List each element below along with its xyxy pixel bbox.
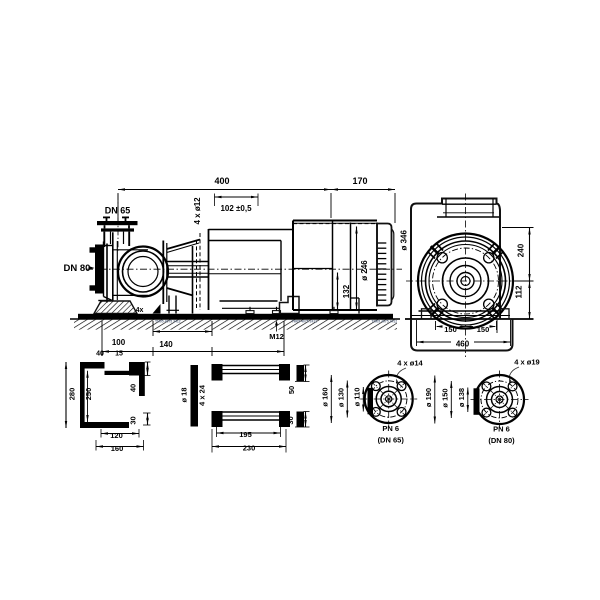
svg-text:160: 160 (111, 444, 124, 453)
svg-text:460: 460 (456, 340, 470, 349)
svg-text:PN 6: PN 6 (382, 424, 399, 433)
svg-text:132: 132 (342, 284, 351, 298)
svg-text:150: 150 (444, 325, 457, 334)
svg-text:102 ±0,5: 102 ±0,5 (220, 204, 252, 213)
svg-text:ø 150: ø 150 (441, 388, 450, 407)
svg-text:M12: M12 (269, 332, 284, 341)
svg-text:ø 138: ø 138 (457, 388, 466, 407)
svg-text:50: 50 (287, 386, 296, 394)
svg-text:140: 140 (159, 340, 173, 349)
svg-text:DN 80: DN 80 (64, 263, 91, 274)
svg-text:TM05 4075 2412: TM05 4075 2412 (292, 319, 318, 323)
svg-text:30: 30 (286, 416, 295, 424)
svg-text:ø 130: ø 130 (337, 388, 346, 407)
svg-text:ø 190: ø 190 (424, 388, 433, 407)
svg-text:ø 246: ø 246 (360, 260, 369, 281)
svg-text:195: 195 (239, 430, 252, 439)
svg-text:240: 240 (517, 243, 526, 257)
svg-text:4 x 24: 4 x 24 (198, 384, 207, 406)
svg-text:250: 250 (84, 388, 93, 401)
svg-text:40: 40 (96, 351, 104, 358)
svg-text:ø 18: ø 18 (180, 387, 189, 402)
svg-text:TM05 4075 2412: TM05 4075 2412 (155, 319, 181, 323)
svg-text:120: 120 (110, 431, 123, 440)
svg-text:4x: 4x (136, 307, 144, 314)
svg-text:ø 110: ø 110 (353, 388, 362, 407)
svg-text:(DN 80): (DN 80) (488, 436, 515, 445)
svg-text:4 x ø12: 4 x ø12 (193, 197, 202, 225)
svg-text:400: 400 (214, 176, 229, 186)
svg-text:4 x ø14: 4 x ø14 (397, 359, 423, 368)
svg-text:(DN 65): (DN 65) (378, 436, 405, 445)
svg-text:4 x ø19: 4 x ø19 (514, 358, 539, 367)
svg-text:150: 150 (477, 325, 490, 334)
svg-text:112: 112 (515, 285, 524, 298)
svg-text:PN 6: PN 6 (493, 425, 510, 434)
svg-text:DN 65: DN 65 (105, 206, 131, 216)
svg-text:170: 170 (352, 176, 367, 186)
svg-text:40: 40 (129, 384, 138, 392)
svg-text:ø 160: ø 160 (321, 387, 330, 406)
svg-text:ø 346: ø 346 (400, 229, 409, 250)
svg-text:15: 15 (115, 351, 123, 358)
svg-text:230: 230 (243, 444, 256, 453)
svg-text:100: 100 (112, 338, 126, 347)
svg-text:30: 30 (129, 416, 138, 424)
svg-text:280: 280 (68, 388, 77, 401)
svg-text:TM05 4075 2412: TM05 4075 2412 (372, 319, 398, 323)
